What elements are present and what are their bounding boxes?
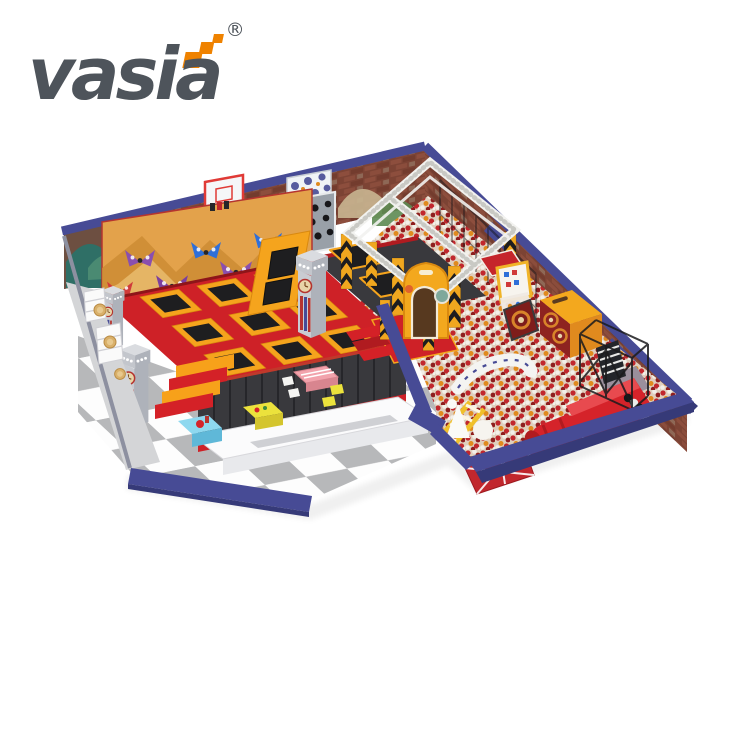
product-image-page: vasia®: [0, 0, 730, 730]
arch-slide-tower: [404, 263, 449, 338]
round-stool: [94, 304, 106, 316]
cone-prop-head: [447, 399, 457, 409]
playground-floorplan-render: [0, 0, 730, 730]
igloo-prop: [473, 420, 493, 440]
round-stool: [115, 369, 126, 380]
clock-tower: [296, 250, 328, 338]
round-stool: [104, 336, 116, 348]
